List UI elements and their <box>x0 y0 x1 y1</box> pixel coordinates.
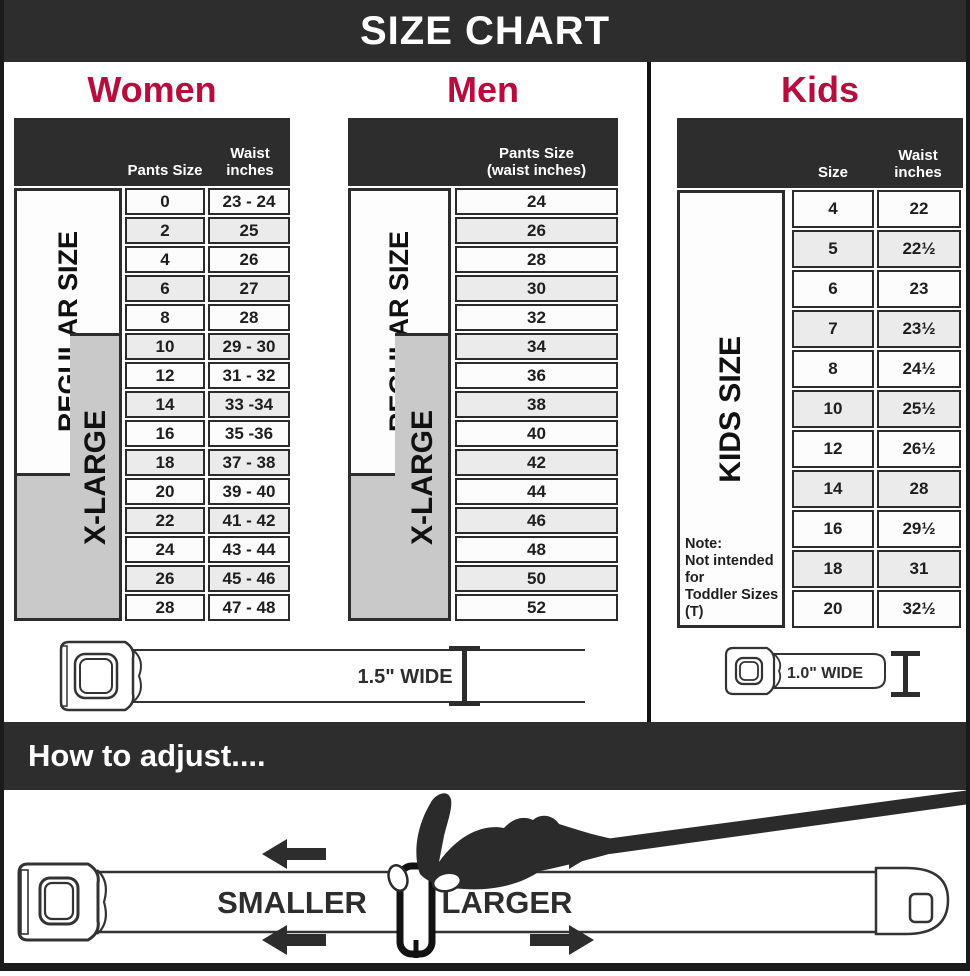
table-cell: 48 <box>455 536 618 563</box>
table-cell: 28 <box>125 594 205 621</box>
smaller-arrow-bottom-icon <box>262 925 326 955</box>
smaller-label: SMALLER <box>217 885 367 920</box>
table-cell: 28 <box>455 246 618 273</box>
larger-label: LARGER <box>442 885 573 920</box>
width-measure-icon <box>891 651 920 697</box>
seatbelt-buckle-icon <box>19 864 106 940</box>
table-cell: 26 <box>125 565 205 592</box>
table-cell: 23½ <box>877 310 961 348</box>
table-cell: 26½ <box>877 430 961 468</box>
table-cell: 22 <box>877 190 961 228</box>
table-cell: 29 - 30 <box>208 333 290 360</box>
table-cell: 38 <box>455 391 618 418</box>
table-cell: 28 <box>877 470 961 508</box>
table-cell: 29½ <box>877 510 961 548</box>
table-cell: 30 <box>455 275 618 302</box>
table-cell: 6 <box>125 275 205 302</box>
table-cell: 32½ <box>877 590 961 628</box>
table-cell: 39 - 40 <box>208 478 290 505</box>
table-cell: 8 <box>125 304 205 331</box>
table-cell: 22½ <box>877 230 961 268</box>
table-cell: 46 <box>455 507 618 534</box>
table-cell: 24 <box>455 188 618 215</box>
men-table-header: Pants Size (waist inches) <box>348 118 618 186</box>
how-to-adjust-heading: How to adjust.... <box>28 738 266 774</box>
seatbelt-buckle-icon <box>61 642 141 710</box>
table-cell: 52 <box>455 594 618 621</box>
kids-note: Note: Not intended for Toddler Sizes (T) <box>685 536 782 621</box>
men-rows: 242628303234363840424446485052 <box>455 188 618 621</box>
table-cell: 43 - 44 <box>208 536 290 563</box>
women-rows: 023 - 242254266278281029 - 301231 - 3214… <box>125 188 290 621</box>
smaller-arrow-top-icon <box>262 839 326 869</box>
kids-belt-width-label: 1.0" WIDE <box>787 665 863 682</box>
table-cell: 2 <box>125 217 205 244</box>
adjust-belt-graphic: SMALLER LARGER <box>0 790 970 971</box>
table-cell: 42 <box>455 449 618 476</box>
table-cell: 4 <box>792 190 874 228</box>
table-cell: 12 <box>125 362 205 389</box>
table-cell: 8 <box>792 350 874 388</box>
adjust-illustration: SMALLER LARGER <box>0 790 970 971</box>
table-cell: 23 <box>877 270 961 308</box>
table-cell: 45 - 46 <box>208 565 290 592</box>
table-cell: 10 <box>125 333 205 360</box>
table-cell: 50 <box>455 565 618 592</box>
table-cell: 23 - 24 <box>208 188 290 215</box>
table-cell: 14 <box>792 470 874 508</box>
adult-belt-graphic: 1.5" WIDE <box>55 638 590 718</box>
table-cell: 31 - 32 <box>208 362 290 389</box>
table-cell: 4 <box>125 246 205 273</box>
table-cell: 16 <box>125 420 205 447</box>
women-col-pants-size: Pants Size <box>124 162 206 179</box>
section-divider <box>647 62 651 722</box>
table-cell: 12 <box>792 430 874 468</box>
table-cell: 27 <box>208 275 290 302</box>
women-table-header: Pants Size Waist inches <box>14 118 290 186</box>
women-size-table: Pants Size Waist inches 023 - 2422542662… <box>14 118 290 628</box>
women-section-title: Women <box>14 66 290 114</box>
table-cell: 5 <box>792 230 874 268</box>
table-cell: 41 - 42 <box>208 507 290 534</box>
table-cell: 26 <box>455 217 618 244</box>
table-cell: 10 <box>792 390 874 428</box>
table-cell: 18 <box>125 449 205 476</box>
table-cell: 33 -34 <box>208 391 290 418</box>
kids-size-box: KIDS SIZE Note: Not intended for Toddler… <box>677 190 785 628</box>
seatbelt-buckle-icon <box>726 648 780 694</box>
men-xlarge-label: X-LARGE <box>406 410 440 545</box>
table-cell: 25½ <box>877 390 961 428</box>
men-col-line2: (waist inches) <box>455 162 618 179</box>
page-title: SIZE CHART <box>360 9 610 54</box>
table-cell: 6 <box>792 270 874 308</box>
men-section-title: Men <box>348 66 618 114</box>
table-cell: 32 <box>455 304 618 331</box>
table-cell: 0 <box>125 188 205 215</box>
kids-col-waist: Waist inches <box>892 147 944 181</box>
table-cell: 35 -36 <box>208 420 290 447</box>
table-cell: 47 - 48 <box>208 594 290 621</box>
adult-belt-width-label: 1.5" WIDE <box>357 666 452 688</box>
larger-arrow-bottom-icon <box>530 925 594 955</box>
kids-size-table: Size Waist inches 422522½623723½824½1025… <box>677 118 963 630</box>
table-cell: 28 <box>208 304 290 331</box>
men-col-line1: Pants Size <box>455 145 618 162</box>
width-measure-icon <box>449 646 480 706</box>
table-cell: 31 <box>877 550 961 588</box>
kids-table-header: Size Waist inches <box>677 118 963 188</box>
kids-rows: 422522½623723½824½1025½1226½14281629½183… <box>792 190 961 628</box>
table-cell: 25 <box>208 217 290 244</box>
table-cell: 44 <box>455 478 618 505</box>
table-cell: 37 - 38 <box>208 449 290 476</box>
table-cell: 20 <box>125 478 205 505</box>
title-bar: SIZE CHART <box>0 0 970 62</box>
table-cell: 40 <box>455 420 618 447</box>
table-cell: 26 <box>208 246 290 273</box>
table-cell: 16 <box>792 510 874 548</box>
table-cell: 34 <box>455 333 618 360</box>
table-cell: 20 <box>792 590 874 628</box>
kids-belt-graphic: 1.0" WIDE <box>723 646 938 706</box>
table-cell: 24½ <box>877 350 961 388</box>
table-cell: 36 <box>455 362 618 389</box>
pulled-strap <box>598 790 970 854</box>
table-cell: 7 <box>792 310 874 348</box>
men-size-table: Pants Size (waist inches) 24262830323436… <box>348 118 618 628</box>
women-col-waist: Waist inches <box>224 145 276 179</box>
kids-col-size: Size <box>792 164 874 181</box>
kids-section-title: Kids <box>677 66 963 114</box>
table-cell: 14 <box>125 391 205 418</box>
table-cell: 22 <box>125 507 205 534</box>
how-to-adjust-bar: How to adjust.... <box>0 722 970 790</box>
women-xlarge-label: X-LARGE <box>79 410 113 545</box>
table-cell: 18 <box>792 550 874 588</box>
table-cell: 24 <box>125 536 205 563</box>
kids-size-label: KIDS SIZE <box>714 336 748 483</box>
